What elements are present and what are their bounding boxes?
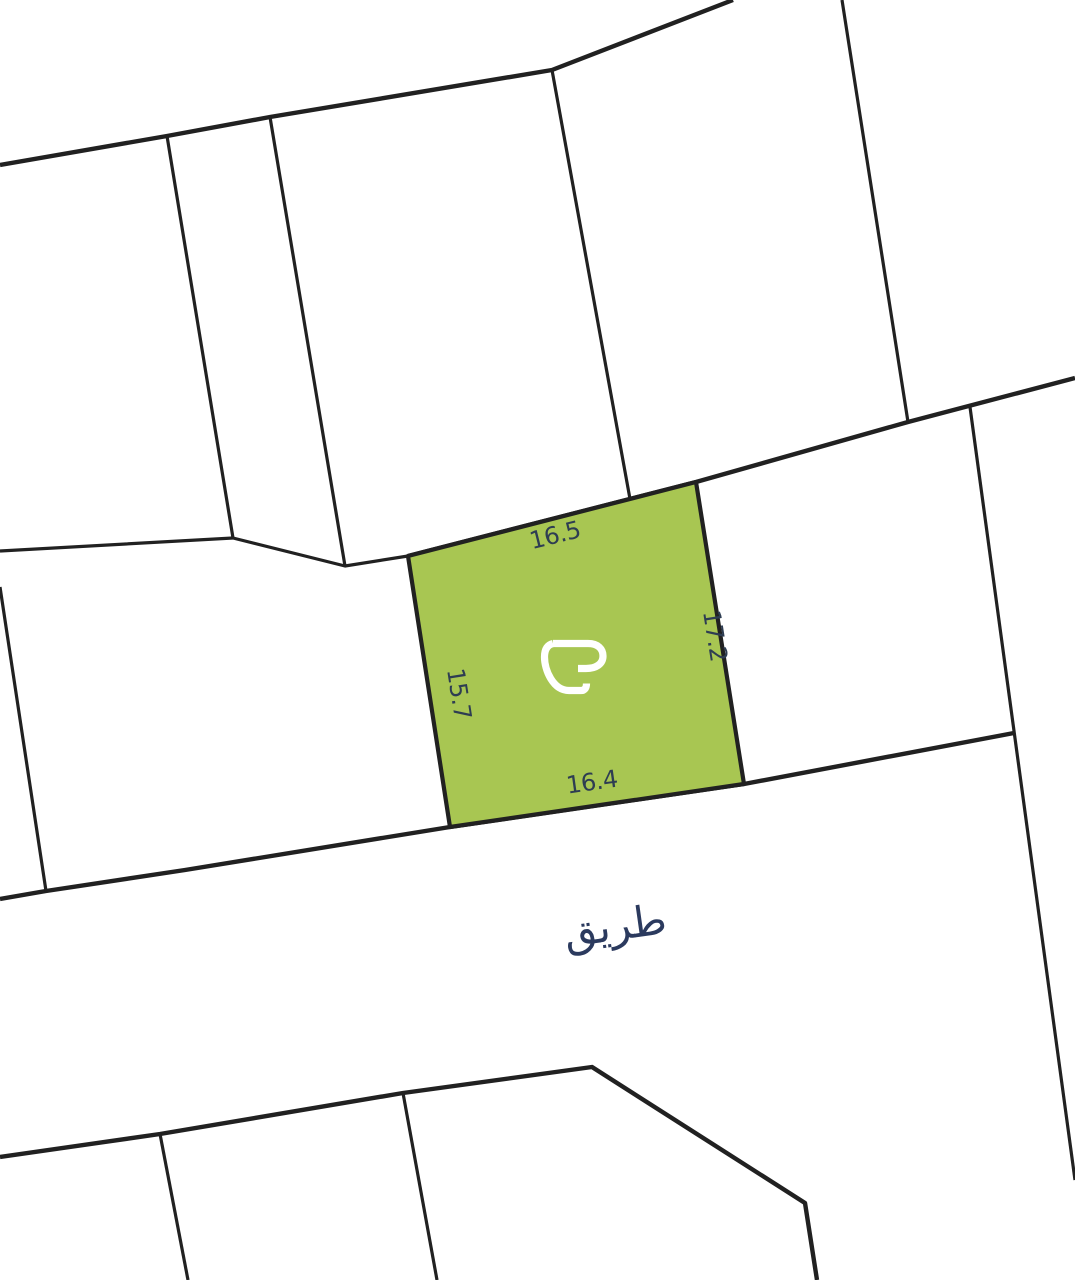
boundary-line bbox=[403, 1093, 437, 1280]
boundary-line bbox=[0, 0, 733, 165]
boundary-line bbox=[160, 1134, 188, 1280]
boundary-line bbox=[0, 538, 408, 566]
boundary-line bbox=[270, 117, 345, 566]
boundary-line bbox=[970, 407, 1075, 1180]
boundary-line bbox=[0, 1067, 817, 1280]
boundary-line bbox=[842, 0, 908, 422]
boundary-line bbox=[552, 70, 630, 499]
boundary-line bbox=[167, 136, 233, 538]
road-label: طريق bbox=[560, 894, 669, 957]
cadastral-map: 16.5 17.2 16.4 15.7 طريق bbox=[0, 0, 1075, 1280]
boundary-line bbox=[0, 587, 46, 891]
parcel-map-canvas: 16.5 17.2 16.4 15.7 طريق bbox=[0, 0, 1075, 1280]
